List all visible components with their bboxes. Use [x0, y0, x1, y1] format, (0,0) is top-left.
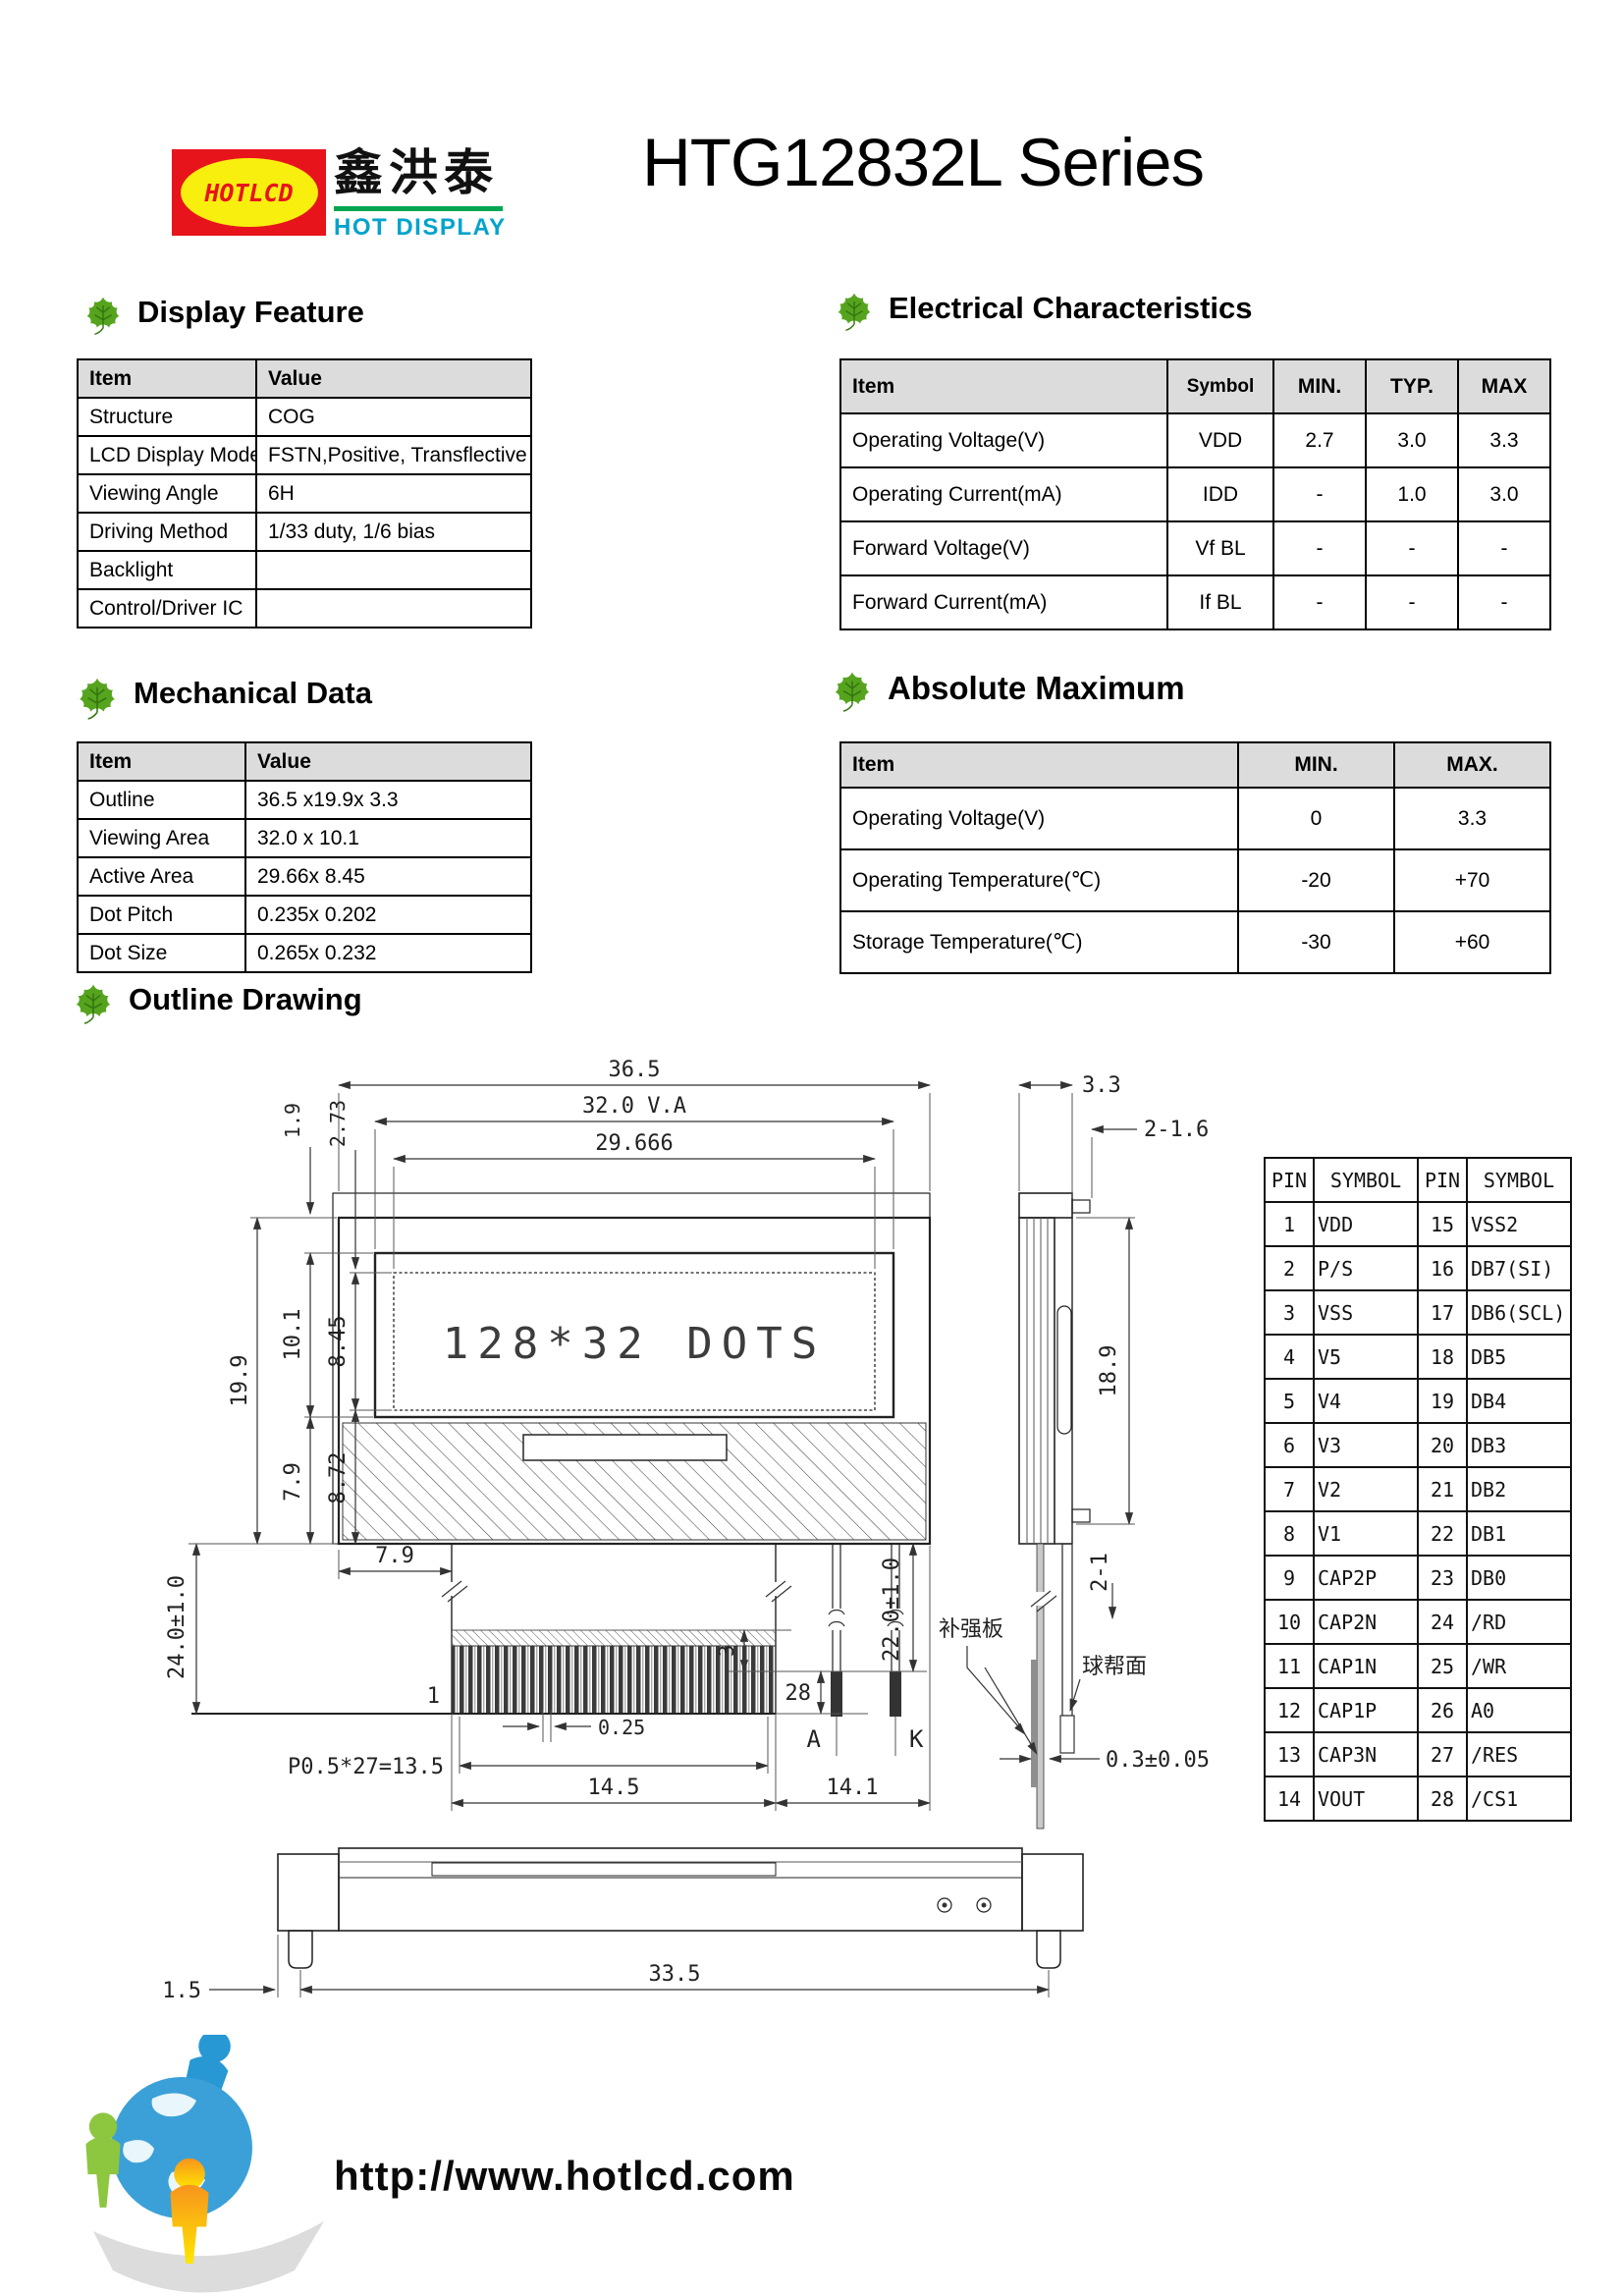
dim-finger-width: 0.25 [598, 1716, 645, 1739]
dim-lower-8-72: 8.72 [326, 1452, 351, 1504]
cell: -20 [1238, 849, 1394, 911]
cell: 2 [1265, 1246, 1314, 1290]
cell: 3.0 [1458, 467, 1550, 521]
cell: CAP1P [1314, 1688, 1418, 1732]
cell: - [1366, 575, 1458, 629]
logo-subtitle: HOT DISPLAY [334, 214, 507, 242]
cell [256, 551, 531, 589]
table-row: Active Area29.66x 8.45 [78, 857, 531, 896]
cell: +60 [1394, 911, 1550, 973]
column-header: TYP. [1366, 359, 1458, 413]
cell: - [1273, 467, 1366, 521]
table-row: 3VSS17DB6(SCL) [1265, 1290, 1571, 1335]
cell: /CS1 [1467, 1777, 1571, 1821]
cell: Operating Temperature(℃) [840, 849, 1238, 911]
section-title: Electrical Characteristics [889, 291, 1253, 326]
table-row: Viewing Area32.0 x 10.1 [78, 819, 531, 857]
dim-fpc-thickness: 0.3±0.05 [1106, 1748, 1210, 1773]
cell: - [1366, 521, 1458, 575]
table-row: Forward Voltage(V)Vf BL--- [840, 521, 1550, 575]
table-row: Operating Voltage(V)VDD2.73.03.3 [840, 413, 1550, 467]
cell: 10 [1265, 1600, 1314, 1644]
cell: A0 [1467, 1688, 1571, 1732]
cell: 5 [1265, 1379, 1314, 1423]
table-row: 9CAP2P23DB0 [1265, 1556, 1571, 1600]
cell: - [1273, 575, 1366, 629]
bottom-view: 1.5 33.5 [162, 1848, 1083, 2003]
table-row: 4V518DB5 [1265, 1335, 1571, 1379]
dim-fpc-offset: 7.9 [375, 1544, 414, 1568]
cell: Viewing Area [78, 819, 245, 857]
table-row: Operating Voltage(V)03.3 [840, 788, 1550, 849]
dim-2-73: 2.73 [326, 1100, 350, 1147]
cell: 27 [1418, 1732, 1467, 1777]
cell: VSS [1314, 1290, 1418, 1335]
cell: DB5 [1467, 1335, 1571, 1379]
dim-foot-offset: 1.5 [162, 1979, 201, 2003]
cell: 29.66x 8.45 [245, 857, 531, 896]
section-title: Display Feature [137, 295, 364, 330]
display-feature-table: ItemValue StructureCOG LCD Display ModeF… [77, 358, 532, 629]
column-header: Value [245, 742, 531, 781]
cell: 22 [1418, 1511, 1467, 1556]
table-row: 1VDD15VSS2 [1265, 1202, 1571, 1246]
cell: V2 [1314, 1467, 1418, 1511]
cell: 3.3 [1458, 413, 1550, 467]
dim-fpc-length: 24.0±1.0 [165, 1575, 189, 1679]
dim-lower-7-9: 7.9 [281, 1462, 305, 1502]
cell: Control/Driver IC [78, 589, 256, 628]
cell: 23 [1418, 1556, 1467, 1600]
mechanical-data-table: ItemValue Outline36.5 x19.9x 3.3 Viewing… [77, 741, 532, 973]
cell: FSTN,Positive, Transflective [256, 436, 531, 474]
cell: 21 [1418, 1467, 1467, 1511]
table-row: Forward Current(mA)If BL--- [840, 575, 1550, 629]
cell: 18 [1418, 1335, 1467, 1379]
cell: /RD [1467, 1600, 1571, 1644]
table-row: 5V419DB4 [1265, 1379, 1571, 1423]
cell: Outline [78, 781, 245, 819]
footer-globe-logo [54, 2035, 368, 2296]
dim-total-height: 19.9 [228, 1355, 252, 1407]
column-header: MAX [1458, 359, 1550, 413]
dim-led-length: 22.0±1.0 [880, 1558, 904, 1662]
column-header: PIN [1418, 1158, 1467, 1202]
label-pin-28: 28 [785, 1681, 812, 1706]
cell: 8 [1265, 1511, 1314, 1556]
section-heading-display-feature: Display Feature [81, 295, 364, 338]
side-view-dimensions: 3.3 2-1.6 18.9 2-1 补强板 球帮面 0.3±0.05 [939, 1073, 1210, 1773]
cell: DB6(SCL) [1467, 1290, 1571, 1335]
leaf-icon [74, 676, 121, 723]
cell: Dot Pitch [78, 896, 245, 934]
dim-tab-2-1-6: 2-1.6 [1144, 1118, 1209, 1142]
label-stiffener: 补强板 [939, 1617, 1003, 1642]
table-row: Operating Current(mA)IDD-1.03.0 [840, 467, 1550, 521]
cell: - [1273, 521, 1366, 575]
cell: - [1458, 521, 1550, 575]
cell: DB0 [1467, 1556, 1571, 1600]
cell: Active Area [78, 857, 245, 896]
leaf-icon [830, 670, 875, 715]
table-row: 13CAP3N27/RES [1265, 1732, 1571, 1777]
cell: DB3 [1467, 1423, 1571, 1467]
cell: 6H [256, 474, 531, 513]
dim-active-width: 29.666 [595, 1131, 673, 1156]
dim-fpc-width: 14.5 [588, 1776, 640, 1800]
logo-chinese-name: 鑫洪泰 [334, 143, 506, 202]
section-heading-electrical: Electrical Characteristics [833, 291, 1253, 334]
cell: V1 [1314, 1511, 1418, 1556]
company-logo-badge: HOTLCD [172, 149, 326, 236]
cell: CAP3N [1314, 1732, 1418, 1777]
cell: COG [256, 398, 531, 436]
column-header: MAX. [1394, 742, 1550, 788]
table-row: Control/Driver IC [78, 589, 531, 628]
cell: Driving Method [78, 513, 256, 551]
cell: 1.0 [1366, 467, 1458, 521]
table-row: 11CAP1N25/WR [1265, 1644, 1571, 1688]
cell: 1 [1265, 1202, 1314, 1246]
fpc-tail [191, 1544, 791, 1714]
label-anode: A [807, 1725, 822, 1753]
cell: VDD [1314, 1202, 1418, 1246]
cell: - [1458, 575, 1550, 629]
column-header: Item [78, 359, 256, 398]
dim-va-height: 10.1 [281, 1309, 305, 1361]
dim-1-9: 1.9 [281, 1103, 304, 1138]
pin-table: PINSYMBOLPINSYMBOL 1VDD15VSS2 2P/S16DB7(… [1264, 1157, 1572, 1822]
column-header: PIN [1265, 1158, 1314, 1202]
table-row: Viewing Angle6H [78, 474, 531, 513]
cell: 3.0 [1366, 413, 1458, 467]
cell: /WR [1467, 1644, 1571, 1688]
column-header: MIN. [1273, 359, 1366, 413]
electrical-characteristics-table: Item Symbol MIN. TYP. MAX Operating Volt… [839, 358, 1551, 630]
cell: 6 [1265, 1423, 1314, 1467]
table-header-row: ItemMIN.MAX. [840, 742, 1550, 788]
table-row: 7V221DB2 [1265, 1467, 1571, 1511]
cell: 4 [1265, 1335, 1314, 1379]
table-row: Dot Size0.265x 0.232 [78, 934, 531, 972]
leaf-icon [81, 295, 125, 338]
lcd-display-text: 128*32 DOTS [443, 1319, 826, 1369]
table-row: 8V122DB1 [1265, 1511, 1571, 1556]
cell: CAP2P [1314, 1556, 1418, 1600]
cell: V4 [1314, 1379, 1418, 1423]
cell: 28 [1418, 1777, 1467, 1821]
cell: Viewing Angle [78, 474, 256, 513]
table-row: 2P/S16DB7(SI) [1265, 1246, 1571, 1290]
cell: 0.265x 0.232 [245, 934, 531, 972]
column-header: SYMBOL [1467, 1158, 1571, 1202]
cell: +70 [1394, 849, 1550, 911]
label-pin-1: 1 [427, 1684, 440, 1709]
dim-tip-3: 3 [715, 1645, 738, 1657]
dim-total-width: 36.5 [609, 1058, 661, 1082]
front-view: 128*32 DOTS [333, 1193, 930, 1544]
side-fpc [1037, 1544, 1044, 1829]
datasheet-page: HOTLCD 鑫洪泰 HOT DISPLAY HTG12832L Series … [0, 0, 1623, 2296]
cell: DB4 [1467, 1379, 1571, 1423]
cell: Operating Voltage(V) [840, 788, 1238, 849]
logo-ellipse: HOTLCD [181, 158, 318, 227]
column-header: SYMBOL [1314, 1158, 1418, 1202]
column-header: Value [256, 359, 531, 398]
cell: Operating Current(mA) [840, 467, 1167, 521]
cell: 14 [1265, 1777, 1314, 1821]
cell: Forward Current(mA) [840, 575, 1167, 629]
person-green [85, 2112, 120, 2208]
cell: V3 [1314, 1423, 1418, 1467]
cell: Structure [78, 398, 256, 436]
section-title: Absolute Maximum [888, 670, 1185, 707]
cell: 0 [1238, 788, 1394, 849]
cell: 20 [1418, 1423, 1467, 1467]
logo-green-underline [334, 206, 503, 211]
cell: Operating Voltage(V) [840, 413, 1167, 467]
cell: 15 [1418, 1202, 1467, 1246]
dim-active-height: 8.45 [326, 1316, 351, 1368]
dim-pitch: P0.5*27=13.5 [288, 1755, 444, 1779]
cell: 26 [1418, 1688, 1467, 1732]
section-title: Mechanical Data [134, 676, 372, 711]
column-header: Item [78, 742, 245, 781]
swoosh-shape [93, 2221, 324, 2293]
cell: 19 [1418, 1379, 1467, 1423]
cell: DB2 [1467, 1467, 1571, 1511]
cell: 24 [1418, 1600, 1467, 1644]
cell: Backlight [78, 551, 256, 589]
cell: 11 [1265, 1644, 1314, 1688]
dim-thickness: 3.3 [1082, 1073, 1121, 1098]
cell [256, 589, 531, 628]
side-view [1019, 1193, 1090, 1829]
table-header-row: ItemValue [78, 742, 531, 781]
table-row: 6V320DB3 [1265, 1423, 1571, 1467]
cell: 9 [1265, 1556, 1314, 1600]
cell: 25 [1418, 1644, 1467, 1688]
cell: -30 [1238, 911, 1394, 973]
cell: VOUT [1314, 1777, 1418, 1821]
label-cathode: K [909, 1725, 924, 1753]
column-header: Item [840, 742, 1238, 788]
table-header-row: Item Symbol MIN. TYP. MAX [840, 359, 1550, 413]
cell: 3.3 [1394, 788, 1550, 849]
table-row: StructureCOG [78, 398, 531, 436]
column-header: Item [840, 359, 1167, 413]
cell: P/S [1314, 1246, 1418, 1290]
table-row: LCD Display ModeFSTN,Positive, Transflec… [78, 436, 531, 474]
cell: DB1 [1467, 1511, 1571, 1556]
table-row: Backlight [78, 551, 531, 589]
dim-side-height: 18.9 [1097, 1345, 1121, 1397]
cell: CAP2N [1314, 1600, 1418, 1644]
person-orange [171, 2159, 209, 2264]
table-row: 12CAP1P26A0 [1265, 1688, 1571, 1732]
stiffener [1031, 1660, 1037, 1787]
cell: 13 [1265, 1732, 1314, 1777]
cell: 17 [1418, 1290, 1467, 1335]
cell: 0.235x 0.202 [245, 896, 531, 934]
dim-va-width: 32.0 V.A [582, 1094, 686, 1119]
cell: DB7(SI) [1467, 1246, 1571, 1290]
absolute-maximum-table: ItemMIN.MAX. Operating Voltage(V)03.3 Op… [839, 741, 1551, 974]
table-header-row: ItemValue [78, 359, 531, 398]
cell: 7 [1265, 1467, 1314, 1511]
cell: 1/33 duty, 1/6 bias [256, 513, 531, 551]
table-row: Storage Temperature(℃)-30+60 [840, 911, 1550, 973]
cell: If BL [1167, 575, 1273, 629]
dim-foot-span: 33.5 [649, 1962, 701, 1987]
cell: 36.5 x19.9x 3.3 [245, 781, 531, 819]
cell: 16 [1418, 1246, 1467, 1290]
cell: LCD Display Mode [78, 436, 256, 474]
column-header: Symbol [1167, 359, 1273, 413]
table-row: Operating Temperature(℃)-20+70 [840, 849, 1550, 911]
cell: 12 [1265, 1688, 1314, 1732]
column-header: MIN. [1238, 742, 1394, 788]
cell: Forward Voltage(V) [840, 521, 1167, 575]
website-url: http://www.hotlcd.com [334, 2153, 795, 2200]
cell: VSS2 [1467, 1202, 1571, 1246]
cell: VDD [1167, 413, 1273, 467]
table-row: 14VOUT28/CS1 [1265, 1777, 1571, 1821]
cell: Vf BL [1167, 521, 1273, 575]
leaf-icon [833, 291, 876, 334]
cell: 2.7 [1273, 413, 1366, 467]
page-title: HTG12832L Series [540, 124, 1306, 201]
logo-badge-text: HOTLCD [204, 179, 293, 207]
cell: /RES [1467, 1732, 1571, 1777]
cell: Storage Temperature(℃) [840, 911, 1238, 973]
table-row: Outline36.5 x19.9x 3.3 [78, 781, 531, 819]
table-row: 10CAP2N24/RD [1265, 1600, 1571, 1644]
table-header-row: PINSYMBOLPINSYMBOL [1265, 1158, 1571, 1202]
section-heading-absolute-maximum: Absolute Maximum [830, 670, 1185, 715]
section-heading-mechanical: Mechanical Data [74, 676, 372, 723]
table-row: Dot Pitch0.235x 0.202 [78, 896, 531, 934]
cell: Dot Size [78, 934, 245, 972]
cell: V5 [1314, 1335, 1418, 1379]
cell: IDD [1167, 467, 1273, 521]
ic-slot [523, 1435, 727, 1460]
dim-led-width: 14.1 [827, 1776, 879, 1800]
cell: 32.0 x 10.1 [245, 819, 531, 857]
label-solder-side: 球帮面 [1082, 1655, 1147, 1679]
dim-tab-2-1: 2-1 [1088, 1553, 1112, 1592]
table-row: Driving Method1/33 duty, 1/6 bias [78, 513, 531, 551]
cell: CAP1N [1314, 1644, 1418, 1688]
cell: 3 [1265, 1290, 1314, 1335]
